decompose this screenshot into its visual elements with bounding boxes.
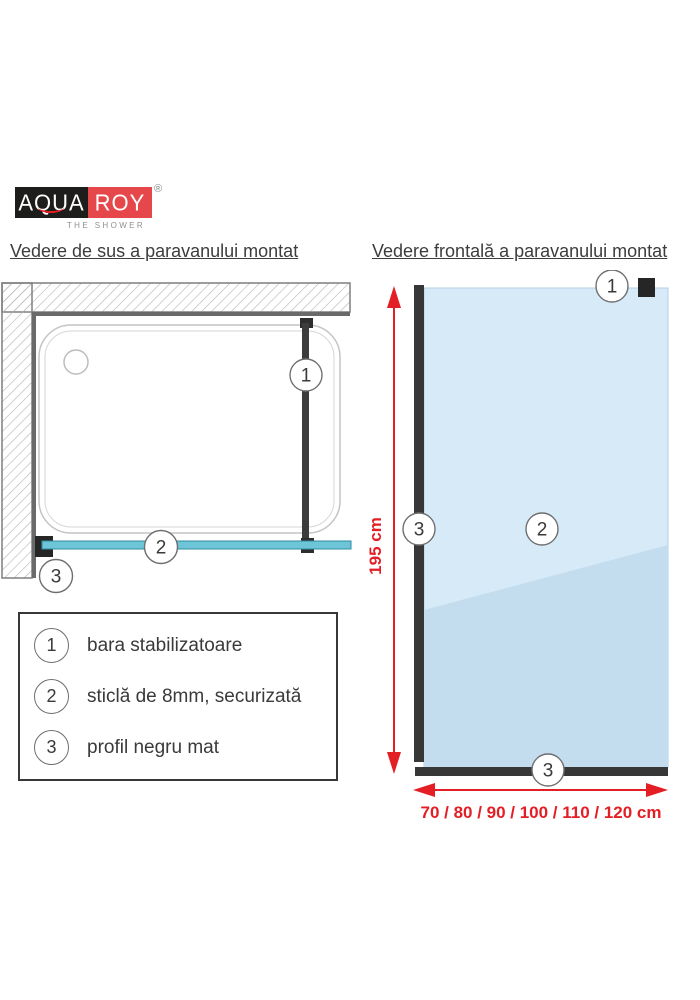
- arrowhead-left-icon: [413, 783, 435, 797]
- legend-label-2: sticlă de 8mm, securizată: [87, 686, 301, 708]
- svg-text:1: 1: [301, 366, 312, 387]
- legend-label-3: profil negru mat: [87, 737, 219, 759]
- page: AQUA ROY ® THE SHOWER Vedere de sus a pa…: [0, 0, 700, 1000]
- stabilizer-anchor-front: [638, 278, 655, 297]
- height-dimension-label: 195 cm: [366, 517, 385, 575]
- svg-text:3: 3: [51, 567, 62, 588]
- registered-mark: ®: [154, 183, 162, 195]
- logo-tagline: THE SHOWER: [60, 221, 152, 230]
- marker-3-topview: 3: [40, 560, 73, 593]
- width-dimension-label: 70 / 80 / 90 / 100 / 110 / 120 cm: [420, 803, 661, 822]
- height-dimension: 195 cm: [366, 286, 401, 774]
- logo-red-box: ROY: [88, 187, 152, 218]
- legend-item-2: 2 sticlă de 8mm, securizată: [34, 679, 336, 714]
- top-view-diagram: 1 2 3: [0, 275, 360, 605]
- legend-item-3: 3 profil negru mat: [34, 730, 336, 765]
- arrowhead-right-icon: [646, 783, 668, 797]
- legend-num-1: 1: [34, 628, 69, 663]
- wall-top: [2, 283, 350, 312]
- legend-num-3: 3: [34, 730, 69, 765]
- legend-label-1: bara stabilizatoare: [87, 635, 242, 657]
- brand-logo: AQUA ROY ® THE SHOWER: [15, 187, 165, 232]
- front-view-title: Vedere frontală a paravanului montat: [372, 241, 667, 262]
- width-dimension: 70 / 80 / 90 / 100 / 110 / 120 cm: [413, 783, 668, 822]
- svg-text:3: 3: [543, 761, 554, 782]
- svg-text:1: 1: [607, 277, 618, 298]
- legend-item-1: 1 bara stabilizatoare: [34, 628, 336, 663]
- glass-panel-topview: [42, 541, 351, 549]
- stabilizer-bar: [302, 323, 309, 540]
- arrowhead-up-icon: [387, 286, 401, 308]
- legend-box: 1 bara stabilizatoare 2 sticlă de 8mm, s…: [18, 612, 338, 781]
- marker-3-front-bottom: 3: [532, 754, 564, 786]
- marker-1-front: 1: [596, 270, 628, 302]
- wall-left: [2, 283, 32, 578]
- logo-swoosh-icon: [38, 202, 64, 213]
- legend-num-2: 2: [34, 679, 69, 714]
- drain-circle: [64, 350, 88, 374]
- top-view-title: Vedere de sus a paravanului montat: [10, 241, 298, 262]
- logo-black-box: AQUA: [15, 187, 88, 218]
- marker-2-topview: 2: [145, 531, 178, 564]
- svg-text:2: 2: [537, 520, 548, 541]
- marker-2-front: 2: [526, 513, 558, 545]
- marker-3-front-left: 3: [403, 513, 435, 545]
- svg-text:3: 3: [414, 520, 425, 541]
- arrowhead-down-icon: [387, 752, 401, 774]
- marker-1-topview: 1: [290, 359, 322, 391]
- svg-text:2: 2: [156, 538, 167, 559]
- front-view-diagram: 195 cm 70 / 80 / 90 / 100 / 110 / 120 cm…: [365, 270, 700, 830]
- logo-text-roy: ROY: [95, 191, 146, 214]
